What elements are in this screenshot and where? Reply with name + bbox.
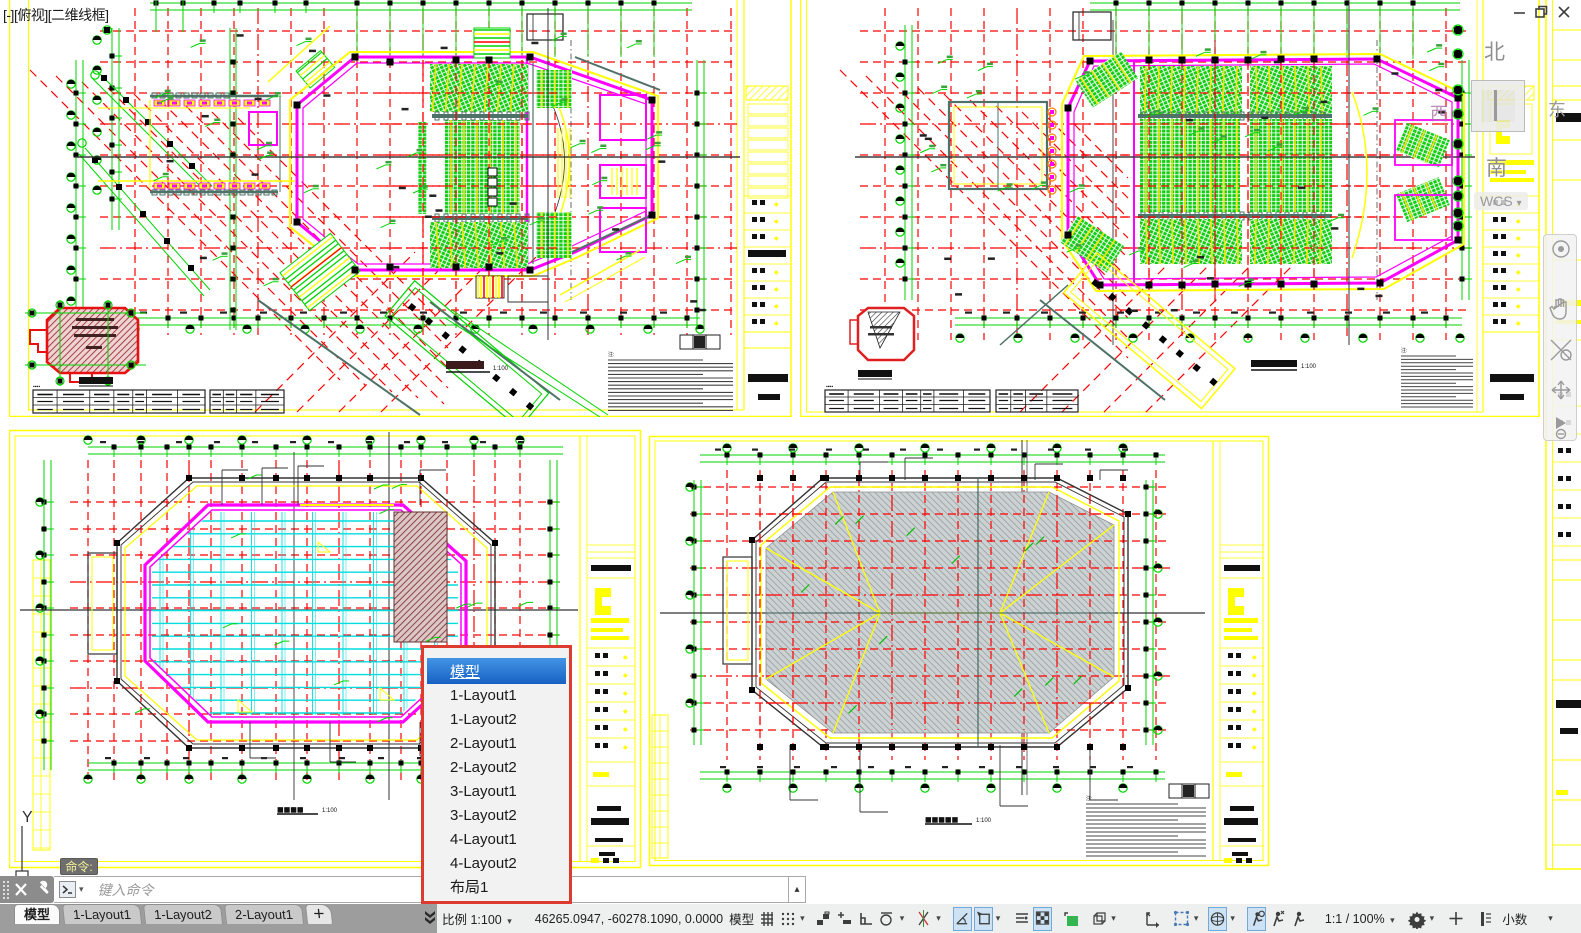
svg-text:◆: ◆: [1516, 253, 1521, 259]
svg-text:◆: ◆: [1252, 727, 1257, 733]
svg-text:◆: ◆: [1252, 709, 1257, 715]
svg-text:◆: ◆: [1516, 236, 1521, 242]
svg-text:1:100: 1:100: [1301, 364, 1317, 370]
svg-text:◆: ◆: [1516, 321, 1521, 327]
svg-text:◆: ◆: [774, 321, 779, 327]
svg-text:◼◼◼◼◼: ◼◼◼◼◼: [925, 815, 959, 824]
svg-text:1:100: 1:100: [976, 818, 992, 824]
svg-text:◆: ◆: [1252, 691, 1257, 697]
svg-text:1:100: 1:100: [322, 808, 338, 814]
svg-text:◆: ◆: [623, 709, 628, 715]
svg-text:◆: ◆: [774, 236, 779, 242]
svg-text:▪▪▪▪: ▪▪▪▪: [33, 384, 40, 390]
svg-text:◆: ◆: [623, 655, 628, 661]
svg-text:◆: ◆: [623, 727, 628, 733]
svg-text:▪▪▪▪: ▪▪▪▪: [826, 384, 833, 390]
svg-text:◼◼◼◼: ◼◼◼◼: [277, 805, 304, 814]
svg-text:◆: ◆: [774, 202, 779, 208]
svg-text:◆: ◆: [774, 287, 779, 293]
svg-text:◆: ◆: [1516, 304, 1521, 310]
svg-text:1:100: 1:100: [493, 366, 509, 372]
svg-text:◆: ◆: [623, 673, 628, 679]
svg-text:◆: ◆: [623, 691, 628, 697]
svg-text:◆: ◆: [1252, 673, 1257, 679]
svg-text:◆: ◆: [1252, 655, 1257, 661]
svg-text:◆: ◆: [774, 270, 779, 276]
svg-text:◆: ◆: [1516, 287, 1521, 293]
svg-text:注:: 注:: [608, 351, 614, 358]
svg-text:注:: 注:: [1086, 795, 1092, 802]
svg-text:◆: ◆: [623, 745, 628, 751]
svg-text:◆: ◆: [1516, 219, 1521, 225]
svg-text:◆: ◆: [1252, 745, 1257, 751]
svg-text:◆: ◆: [1516, 270, 1521, 276]
svg-text:◆: ◆: [774, 304, 779, 310]
svg-text:注:: 注:: [1401, 347, 1407, 354]
svg-text:Y: Y: [22, 809, 33, 826]
svg-text:◆: ◆: [774, 219, 779, 225]
